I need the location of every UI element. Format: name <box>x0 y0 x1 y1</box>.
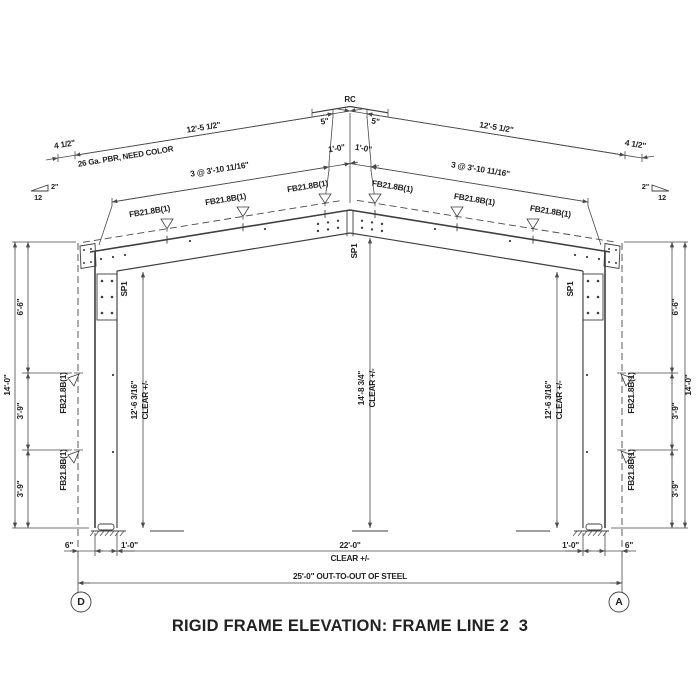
roof-fb-label-5: FB21.8B(1) <box>453 191 496 208</box>
left-wall-fb-label-2: FB21.8B(1) <box>58 449 68 491</box>
right-clear-suffix: CLEAR +/- <box>554 380 564 419</box>
grid-bubbles: D A <box>71 592 629 612</box>
right-base-plate <box>586 524 602 530</box>
right-wall-seg-bot: 3'-9" <box>670 480 680 497</box>
dim-roof-edge-left: 4 1/2" <box>53 137 76 150</box>
ridge-cap-lines <box>312 107 388 113</box>
roof-fb-label-1: FB21.8B(1) <box>128 203 171 220</box>
dim-purlin-spacing-left: 3 @ 3'-10 11/16" <box>189 159 249 178</box>
clear-width: 22'-0" <box>339 540 361 550</box>
left-wall-seg-top: 6'-6" <box>15 298 25 315</box>
left-roof-purlin-line <box>83 200 343 242</box>
right-wall-seg-mid: 3'-9" <box>670 402 680 419</box>
right-grid-letter: A <box>615 596 623 608</box>
dim-first-purlin-right: 1'-0" <box>354 142 373 155</box>
rigid-frame-elevation-drawing: RC 4 1/2" 12'-5 1/2" 5" 1'-0" 3 @ 3'-10 … <box>0 0 700 700</box>
right-slope-rise: 2" <box>642 182 650 191</box>
right-clear-height: 12'-6 3/16" <box>543 380 553 419</box>
left-knee-splice-label: SP1 <box>119 281 129 297</box>
left-wall-fb-label-1: FB21.8B(1) <box>58 372 68 414</box>
left-grid-letter: D <box>77 596 85 608</box>
dim-roof-edge-right: 4 1/2" <box>624 137 647 150</box>
left-wall-seg-mid: 3'-9" <box>15 402 25 419</box>
roof-fb-label-6: FB21.8B(1) <box>529 203 572 220</box>
roof-dimensions-left: 4 1/2" 12'-5 1/2" 5" 1'-0" 3 @ 3'-10 11/… <box>46 109 362 245</box>
bottom-inset-left: 1'-0" <box>121 540 138 550</box>
right-wall-fb-label-1: FB21.8B(1) <box>626 372 636 414</box>
left-eave-strut <box>80 244 96 269</box>
left-clear-suffix: CLEAR +/- <box>140 380 150 419</box>
center-clear-suffix: CLEAR +/- <box>367 368 377 407</box>
wall-dimensions-right: 6'-6" 3'-9" 3'-9" 14'-0" <box>611 242 693 528</box>
right-footing-hatch <box>573 531 607 536</box>
ground <box>90 531 609 536</box>
roof-fb-label-3: FB21.8B(1) <box>286 178 329 195</box>
dim-ridge-offset-left: 5" <box>320 115 330 126</box>
left-knee-plate <box>97 274 117 320</box>
ridge-cap-label: RC <box>344 95 356 104</box>
drawing-sheet: RC 4 1/2" 12'-5 1/2" 5" 1'-0" 3 @ 3'-10 … <box>0 0 700 700</box>
bottom-offset-right: 6" <box>625 540 633 550</box>
roof-fb-label-2: FB21.8B(1) <box>204 191 247 208</box>
bottom-inset-right: 1'-0" <box>562 540 579 550</box>
right-wall-overall: 14'-0" <box>683 374 693 396</box>
left-slope-rise: 2" <box>51 182 59 191</box>
left-clear-height: 12'-6 3/16" <box>129 380 139 419</box>
right-knee-splice-label: SP1 <box>565 281 575 297</box>
right-eave-strut <box>604 244 620 269</box>
bottom-dimensions: 6" 1'-0" 22'-0" CLEAR +/- 1'-0" 6" 25'-0… <box>64 533 636 592</box>
roof-panel-note: 26 Ga. PBR, NEED COLOR <box>77 144 174 168</box>
wall-dimensions-left: 6'-6" 3'-9" 3'-9" 14'-0" <box>2 242 89 528</box>
purlin-clip-ticks <box>167 210 533 244</box>
right-slope-run: 12 <box>658 193 666 202</box>
dim-ridge-offset-right: 5" <box>371 115 381 126</box>
dim-purlin-spacing-right: 3 @ 3'-10 11/16" <box>450 159 510 178</box>
bottom-offset-left: 6" <box>65 540 73 550</box>
ridge-splice-label: SP1 <box>349 243 359 259</box>
clear-height-dimensions: 12'-6 3/16" CLEAR +/- 14'-8 3/4" CLEAR +… <box>129 238 564 528</box>
roof-dimensions-right: 4 1/2" 12'-5 1/2" 5" 1'-0" 3 @ 3'-10 11/… <box>338 109 654 245</box>
left-slope-run: 12 <box>34 193 42 202</box>
dim-first-purlin-left: 1'-0" <box>327 142 346 155</box>
left-wall-seg-bot: 3'-9" <box>15 480 25 497</box>
drawing-title: RIGID FRAME ELEVATION: FRAME LINE 2 3 <box>172 617 528 635</box>
clear-width-suffix: CLEAR +/- <box>331 553 370 563</box>
center-clear-height: 14'-8 3/4" <box>356 371 366 406</box>
left-base-plate <box>98 524 114 530</box>
left-slope-triangle <box>31 185 48 191</box>
right-roof-purlin-line <box>357 200 617 242</box>
right-wall-seg-top: 6'-6" <box>670 298 680 315</box>
right-wall-fb-label-2: FB21.8B(1) <box>626 449 636 491</box>
roof-fb-label-4: FB21.8B(1) <box>371 178 414 195</box>
right-knee-plate <box>583 274 603 320</box>
left-wall-overall: 14'-0" <box>2 374 12 396</box>
out-to-out-dim: 25'-0" OUT-TO-OUT OF STEEL <box>293 571 407 581</box>
right-slope-triangle <box>652 185 669 191</box>
splice-labels: SP1 SP1 SP1 <box>119 243 575 297</box>
